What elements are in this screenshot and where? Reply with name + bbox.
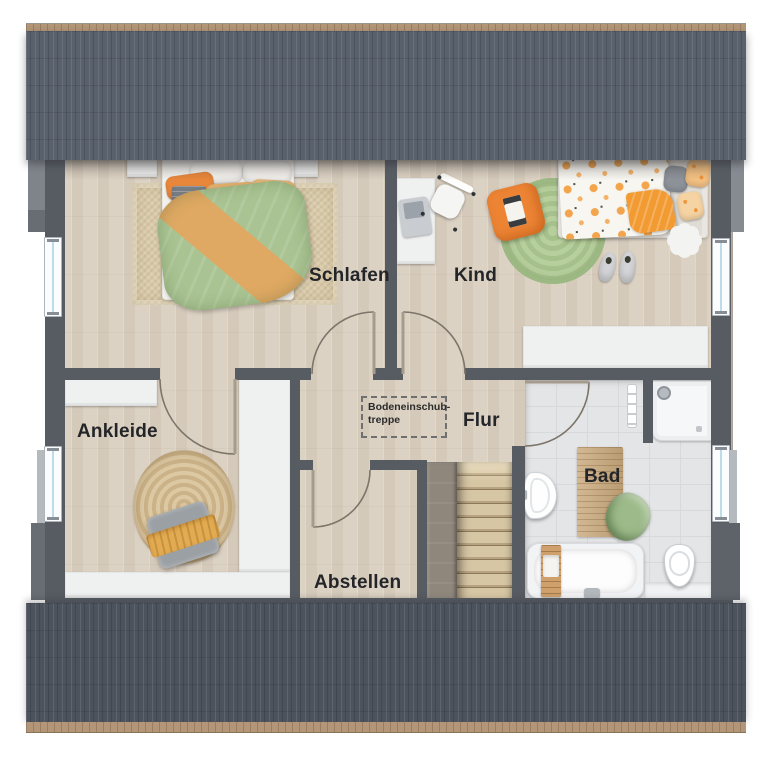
- wall-ankleide-flur: [290, 368, 300, 600]
- wall-segment: [465, 368, 712, 380]
- roof-top: [26, 31, 746, 160]
- towel-radiator-icon: [627, 384, 637, 428]
- window-kind: [712, 238, 730, 316]
- flower-side-table-icon: [677, 233, 692, 248]
- wall-left-outer: [45, 158, 65, 602]
- stair-knee-wall: [427, 462, 457, 602]
- wardrobe-icon: [239, 378, 290, 572]
- facade-accent: [28, 210, 45, 232]
- sideboard-icon: [523, 326, 708, 368]
- orange-blanket-icon: [625, 187, 676, 235]
- window-bad: [712, 445, 730, 522]
- wall-segment: [298, 460, 313, 470]
- facade-accent: [711, 523, 740, 600]
- room-label-abstellen: Abstellen: [314, 572, 401, 594]
- towel-icon: [145, 513, 221, 558]
- bath-caddy-icon: [541, 545, 561, 597]
- wall-segment: [373, 368, 403, 380]
- attic-hatch-line2: treppe: [368, 414, 445, 427]
- attic-hatch-annotation: Bodeneinschub- treppe: [361, 396, 447, 438]
- facade-accent: [31, 523, 45, 600]
- window-schlafen: [44, 237, 62, 317]
- wall-abstellen-stairs: [417, 460, 427, 600]
- window-ankleide: [44, 446, 62, 522]
- wall-segment: [65, 368, 160, 380]
- wardrobe-icon: [65, 378, 157, 406]
- attic-hatch-line1: Bodeneinschub-: [368, 401, 445, 414]
- floor-plan: Schlafen Kind Ankleide Flur Abstellen Ba…: [0, 0, 775, 763]
- facade-accent: [731, 158, 744, 232]
- room-label-kind: Kind: [454, 265, 497, 287]
- book-icon: [502, 195, 527, 228]
- room-label-flur: Flur: [463, 410, 500, 432]
- room-label-ankleide: Ankleide: [77, 421, 158, 443]
- wardrobe-icon: [65, 572, 290, 598]
- wall-shower-stub: [643, 377, 653, 443]
- wall-flur-bad: [512, 446, 525, 600]
- room-label-bad: Bad: [584, 466, 621, 488]
- faucet-icon: [584, 588, 600, 598]
- pillow-icon: [676, 190, 705, 222]
- shower-drain: [696, 426, 702, 432]
- towel-icon: [543, 555, 559, 577]
- staircase-icon: [457, 462, 512, 602]
- shower-head-icon: [657, 386, 671, 400]
- room-label-schlafen: Schlafen: [309, 265, 390, 287]
- window-sill: [729, 450, 737, 523]
- wall-schlafen-kind: [385, 158, 397, 370]
- roof-bottom: [26, 603, 746, 724]
- roof-ridge-bottom: [26, 722, 746, 733]
